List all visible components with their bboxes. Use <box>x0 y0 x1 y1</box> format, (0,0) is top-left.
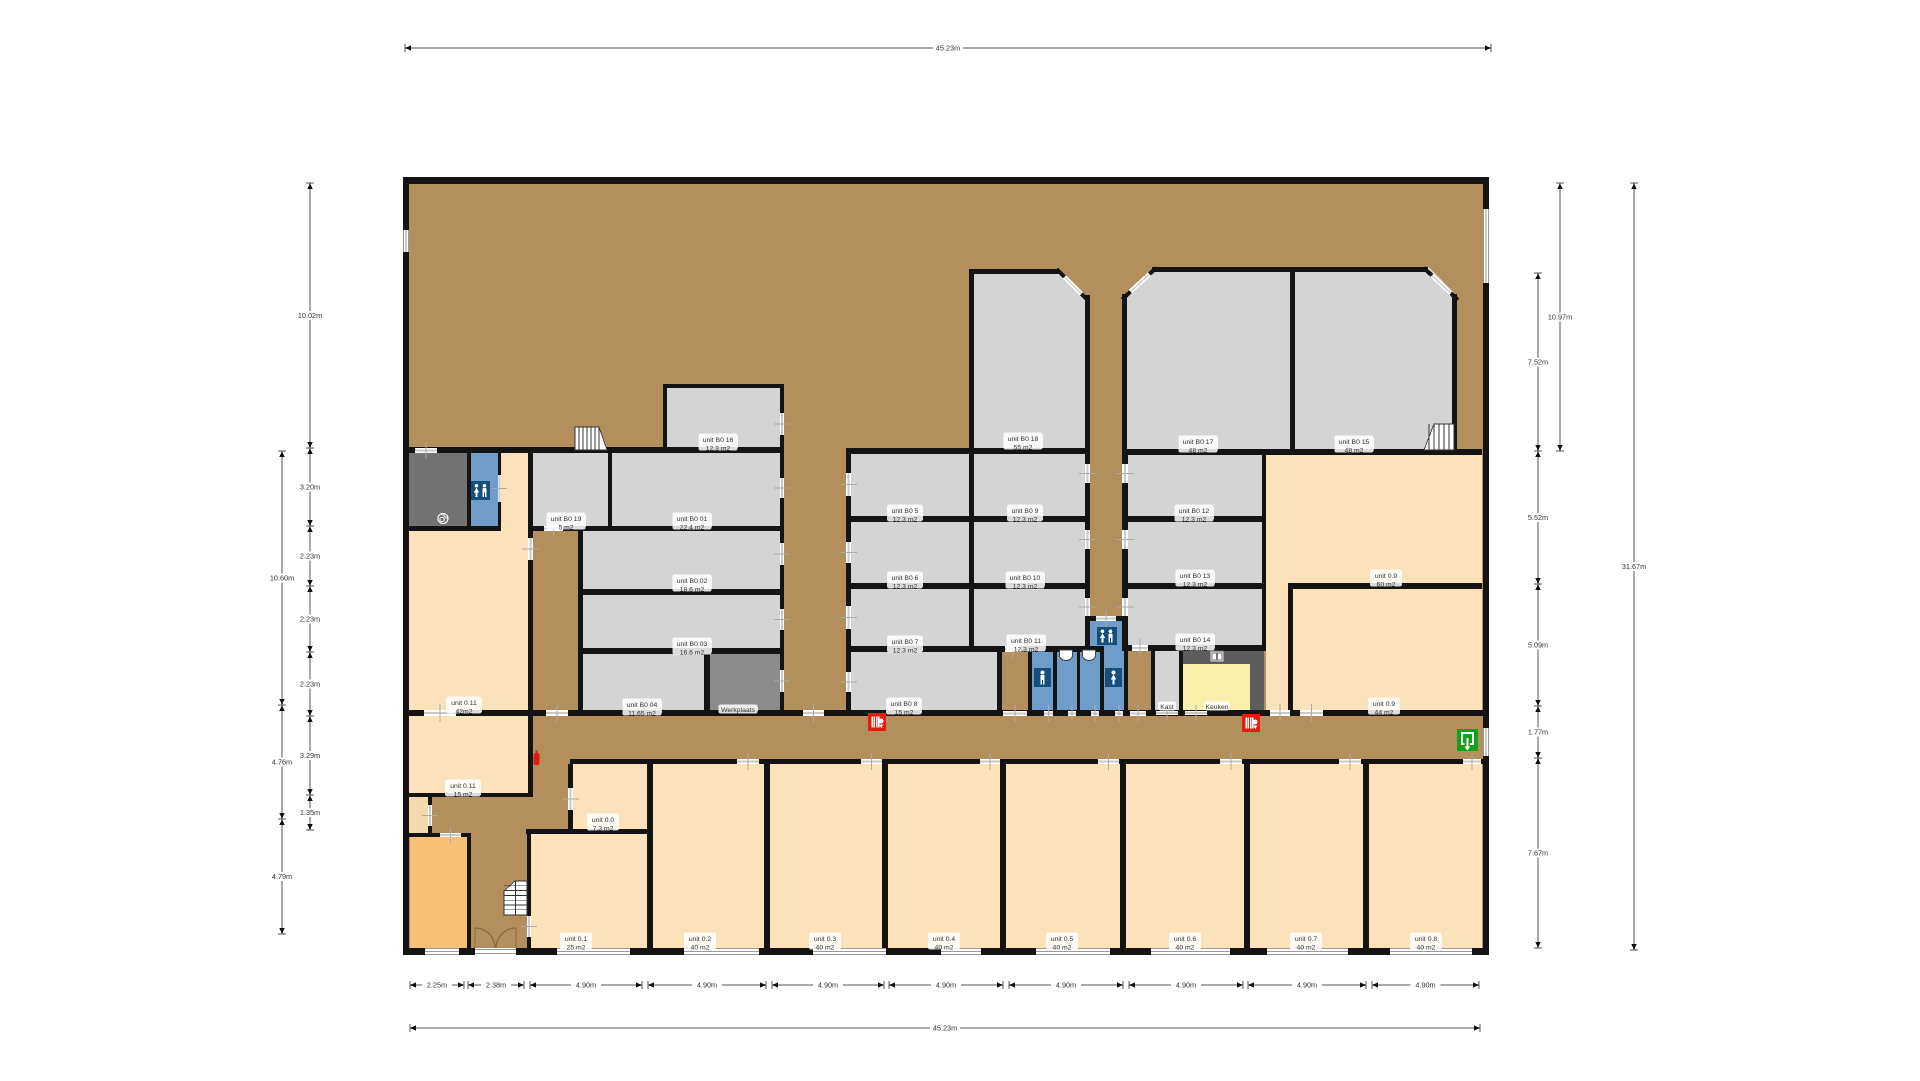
svg-text:12.3 m2: 12.3 m2 <box>1183 582 1208 589</box>
svg-text:12.3 m2: 12.3 m2 <box>1014 647 1039 654</box>
svg-text:unit B0 5: unit B0 5 <box>892 508 919 515</box>
svg-text:unit 0.0: unit 0.0 <box>592 817 615 824</box>
svg-text:40 m2: 40 m2 <box>1053 945 1072 952</box>
svg-text:12.3 m2: 12.3 m2 <box>1013 584 1038 591</box>
svg-text:unit 0.7: unit 0.7 <box>1295 936 1318 943</box>
svg-text:unit B0 18: unit B0 18 <box>1008 436 1039 443</box>
svg-text:7.3 m2: 7.3 m2 <box>593 826 614 833</box>
svg-text:unit B0 03: unit B0 03 <box>677 641 708 648</box>
svg-text:Kast: Kast <box>1160 704 1174 711</box>
svg-text:40 m2: 40 m2 <box>1297 945 1316 952</box>
svg-text:7.67m: 7.67m <box>1528 849 1548 858</box>
svg-text:42m2: 42m2 <box>455 709 472 716</box>
svg-text:unit B0 9: unit B0 9 <box>1012 508 1039 515</box>
svg-text:18.6 m2: 18.6 m2 <box>680 587 705 594</box>
svg-text:3.20m: 3.20m <box>300 483 320 492</box>
svg-text:Werkplaats: Werkplaats <box>721 707 755 714</box>
svg-text:unit B0 01: unit B0 01 <box>677 516 708 523</box>
svg-text:2.23m: 2.23m <box>300 680 320 689</box>
svg-text:unit B0 11: unit B0 11 <box>1011 638 1041 645</box>
svg-text:12.3 m2: 12.3 m2 <box>893 648 918 655</box>
svg-text:unit B0 12: unit B0 12 <box>1179 508 1210 515</box>
svg-text:unit 0.4: unit 0.4 <box>933 936 956 943</box>
svg-text:2.25m: 2.25m <box>427 981 447 990</box>
svg-text:15 m2: 15 m2 <box>454 792 473 799</box>
svg-text:unit 0.1: unit 0.1 <box>565 936 588 943</box>
svg-text:4.90m: 4.90m <box>1297 981 1317 990</box>
svg-text:unit 0.11: unit 0.11 <box>451 700 477 707</box>
svg-text:5.52m: 5.52m <box>1528 513 1548 522</box>
svg-text:4.90m: 4.90m <box>1176 981 1196 990</box>
svg-text:12.3 m2: 12.3 m2 <box>893 584 918 591</box>
svg-text:12.3 m2: 12.3 m2 <box>706 446 731 453</box>
svg-text:unit 0.8: unit 0.8 <box>1415 936 1438 943</box>
svg-text:10.02m: 10.02m <box>298 311 322 320</box>
svg-text:11.65 m2: 11.65 m2 <box>628 711 656 718</box>
svg-text:48 m2: 48 m2 <box>1345 448 1364 455</box>
svg-text:unit B0 17: unit B0 17 <box>1183 439 1214 446</box>
svg-text:25 m2: 25 m2 <box>567 945 586 952</box>
svg-text:44 m2: 44 m2 <box>1375 710 1394 717</box>
svg-text:Keuken: Keuken <box>1205 704 1228 711</box>
svg-text:40 m2: 40 m2 <box>935 945 954 952</box>
svg-text:unit B0 8: unit B0 8 <box>891 701 918 708</box>
svg-text:unit 0.9: unit 0.9 <box>1373 701 1396 708</box>
svg-text:4.90m: 4.90m <box>576 981 596 990</box>
svg-text:45.23m: 45.23m <box>936 44 960 53</box>
svg-text:unit B0 6: unit B0 6 <box>892 575 919 582</box>
svg-text:5.09m: 5.09m <box>1528 641 1548 650</box>
svg-text:12.3 m2: 12.3 m2 <box>1182 517 1207 524</box>
svg-text:unit B0 7: unit B0 7 <box>892 639 919 646</box>
svg-text:4.90m: 4.90m <box>936 981 956 990</box>
svg-text:2.38m: 2.38m <box>486 981 506 990</box>
svg-text:10.97m: 10.97m <box>1548 313 1572 322</box>
svg-text:7.52m: 7.52m <box>1528 358 1548 367</box>
svg-text:12.3 m2: 12.3 m2 <box>1013 517 1038 524</box>
svg-text:unit 0.3: unit 0.3 <box>814 936 837 943</box>
svg-text:12.3 m2: 12.3 m2 <box>1183 646 1208 653</box>
svg-text:unit 0.6: unit 0.6 <box>1174 936 1197 943</box>
svg-text:10.60m: 10.60m <box>270 574 294 583</box>
svg-text:4.90m: 4.90m <box>1415 981 1435 990</box>
svg-text:22.4 m2: 22.4 m2 <box>680 525 705 532</box>
svg-text:unit B0 02: unit B0 02 <box>677 578 708 585</box>
svg-text:2.23m: 2.23m <box>300 615 320 624</box>
svg-text:40 m2: 40 m2 <box>816 945 835 952</box>
svg-text:15 m2: 15 m2 <box>895 710 914 717</box>
svg-text:unit 0.11: unit 0.11 <box>450 783 476 790</box>
svg-text:3.29m: 3.29m <box>300 751 320 760</box>
svg-text:48 m2: 48 m2 <box>1189 448 1208 455</box>
svg-text:16.6 m2: 16.6 m2 <box>680 650 705 657</box>
svg-text:45.23m: 45.23m <box>933 1024 957 1033</box>
svg-text:unit B0 04: unit B0 04 <box>627 702 658 709</box>
svg-text:unit B0 15: unit B0 15 <box>1339 439 1370 446</box>
svg-text:40 m2: 40 m2 <box>691 945 710 952</box>
svg-text:unit B0 19: unit B0 19 <box>551 516 582 523</box>
svg-text:unit B0 14: unit B0 14 <box>1180 637 1211 644</box>
svg-text:2.23m: 2.23m <box>300 552 320 561</box>
svg-text:4.90m: 4.90m <box>697 981 717 990</box>
svg-text:60 m2: 60 m2 <box>1377 582 1396 589</box>
svg-text:unit 0.2: unit 0.2 <box>689 936 712 943</box>
svg-text:1.35m: 1.35m <box>300 808 320 817</box>
svg-text:4.79m: 4.79m <box>272 872 292 881</box>
svg-text:5 m2: 5 m2 <box>558 525 573 532</box>
svg-text:40 m2: 40 m2 <box>1176 945 1195 952</box>
svg-text:55 m2: 55 m2 <box>1014 445 1033 452</box>
svg-text:unit B0 16: unit B0 16 <box>703 437 734 444</box>
svg-text:unit 0.5: unit 0.5 <box>1051 936 1074 943</box>
svg-text:31.67m: 31.67m <box>1622 562 1646 571</box>
svg-text:4.90m: 4.90m <box>818 981 838 990</box>
svg-text:40 m2: 40 m2 <box>1417 945 1436 952</box>
svg-text:4.76m: 4.76m <box>272 758 292 767</box>
svg-text:12.3 m2: 12.3 m2 <box>893 517 918 524</box>
svg-text:1.77m: 1.77m <box>1528 728 1548 737</box>
svg-text:4.90m: 4.90m <box>1056 981 1076 990</box>
svg-text:unit 0.9: unit 0.9 <box>1375 573 1398 580</box>
svg-text:unit B0 13: unit B0 13 <box>1180 573 1211 580</box>
svg-text:unit B0 10: unit B0 10 <box>1010 575 1041 582</box>
